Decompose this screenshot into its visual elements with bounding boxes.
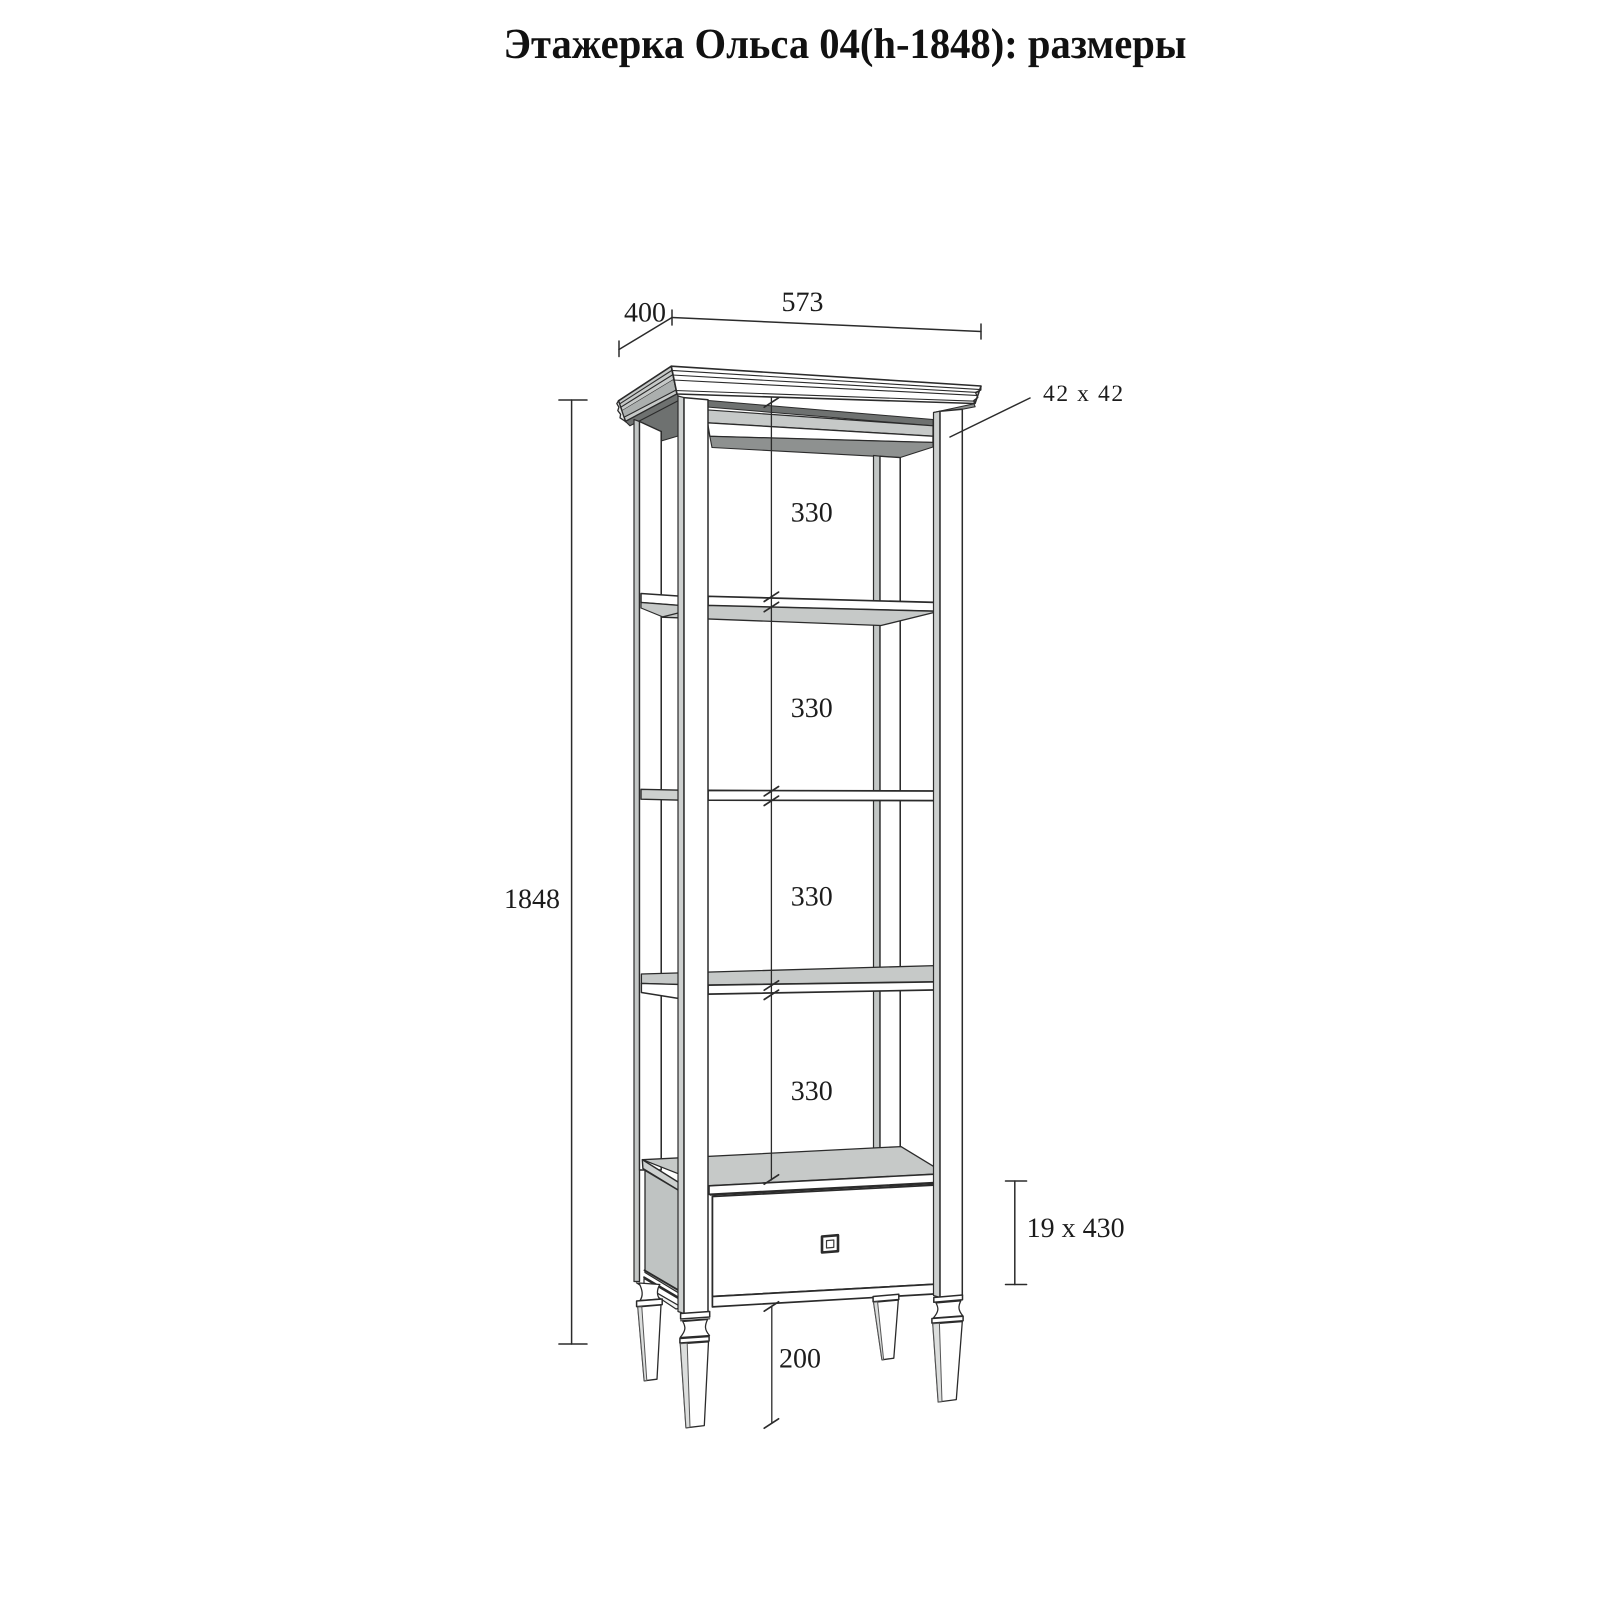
svg-text:1848: 1848 bbox=[504, 884, 560, 915]
svg-text:330: 330 bbox=[791, 497, 833, 528]
svg-text:Этажерка Ольса 04(h-1848): раз: Этажерка Ольса 04(h-1848): размеры bbox=[504, 21, 1187, 68]
svg-text:400: 400 bbox=[624, 298, 666, 329]
svg-text:200: 200 bbox=[779, 1344, 821, 1375]
svg-text:330: 330 bbox=[791, 1076, 833, 1107]
svg-text:330: 330 bbox=[791, 882, 833, 913]
svg-text:19 x 430: 19 x 430 bbox=[1027, 1213, 1125, 1244]
svg-text:42 x 42: 42 x 42 bbox=[1043, 381, 1125, 407]
svg-text:573: 573 bbox=[782, 287, 824, 318]
svg-text:330: 330 bbox=[791, 693, 833, 724]
